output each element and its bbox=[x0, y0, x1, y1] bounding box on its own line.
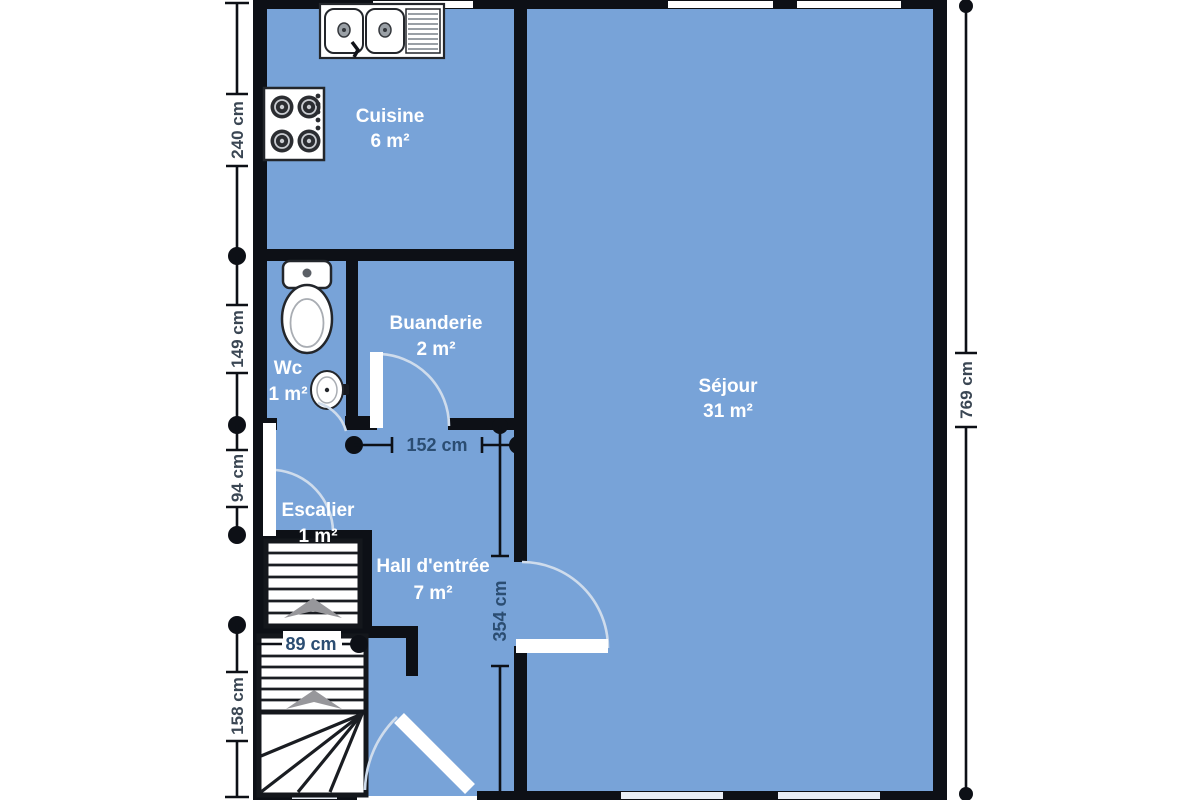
room-label-cuisine: Cuisine bbox=[356, 106, 425, 127]
room-label-escalier: Escalier bbox=[282, 500, 355, 521]
dimension-hall-width-label: 152 cm bbox=[406, 435, 467, 455]
dimension-chain-left: 240 cm 149 cm 94 cm 158 cm bbox=[225, 3, 249, 797]
dimension-right-total: 769 cm bbox=[957, 361, 976, 419]
room-area-cuisine: 6 m² bbox=[370, 131, 409, 152]
stove-icon bbox=[264, 88, 324, 160]
wall-sejour-upper bbox=[514, 0, 527, 562]
room-label-wc: Wc bbox=[274, 358, 303, 379]
room-area-sejour: 31 m² bbox=[703, 401, 753, 422]
wall-hall-west bbox=[406, 626, 418, 676]
wall-kitchen-bottom bbox=[253, 249, 527, 261]
floor-plan: 240 cm 149 cm 94 cm 158 cm 769 cm bbox=[0, 0, 1200, 800]
room-area-hall: 7 m² bbox=[413, 583, 452, 604]
room-label-buanderie: Buanderie bbox=[390, 313, 483, 334]
floor-plan-page: 240 cm 149 cm 94 cm 158 cm 769 cm bbox=[0, 0, 1200, 800]
room-area-escalier: 1 m² bbox=[298, 526, 337, 547]
wall-buanderie-bottom bbox=[448, 418, 527, 430]
dimension-chain-right: 769 cm bbox=[955, 0, 977, 800]
window-sejour-top-2 bbox=[797, 1, 901, 8]
wall-sejour-lower bbox=[514, 646, 527, 800]
window-sejour-bottom-2 bbox=[778, 792, 880, 799]
window-sejour-top-1 bbox=[668, 1, 773, 8]
window-sejour-bottom-1 bbox=[621, 792, 723, 799]
room-area-wc: 1 m² bbox=[268, 384, 307, 405]
stairs bbox=[259, 541, 366, 795]
room-label-hall: Hall d'entrée bbox=[376, 556, 489, 577]
room-label-sejour: Séjour bbox=[698, 376, 758, 397]
toilet-icon bbox=[282, 261, 332, 353]
room-area-buanderie: 2 m² bbox=[416, 339, 455, 360]
dimension-hall-depth-label: 354 cm bbox=[490, 580, 510, 641]
dimension-stair-width-label: 89 cm bbox=[285, 634, 336, 654]
kitchen-sink-icon bbox=[320, 4, 444, 58]
dimension-left-kitchen: 240 cm bbox=[228, 101, 247, 159]
dimension-left-stairs-bottom: 158 cm bbox=[228, 677, 247, 735]
wall-right bbox=[933, 0, 947, 800]
dimension-left-stairs-mid: 94 cm bbox=[228, 454, 247, 502]
dimension-left-wc: 149 cm bbox=[228, 310, 247, 368]
